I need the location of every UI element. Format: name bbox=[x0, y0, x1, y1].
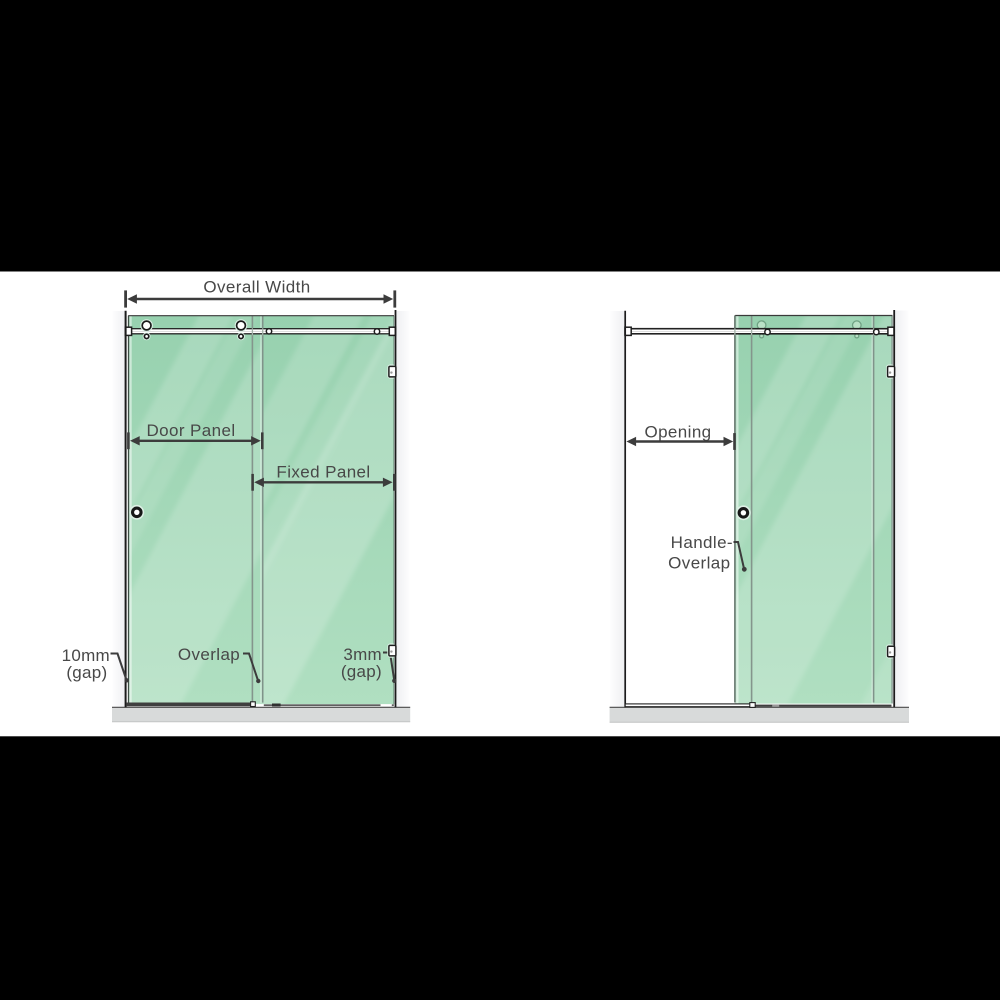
svg-text:Fixed Panel: Fixed Panel bbox=[276, 463, 370, 482]
svg-text:Overlap: Overlap bbox=[178, 645, 240, 664]
svg-text:Opening: Opening bbox=[644, 423, 711, 442]
svg-text:Door Panel: Door Panel bbox=[146, 421, 235, 440]
svg-text:(gap): (gap) bbox=[341, 662, 382, 681]
svg-text:Handle-: Handle- bbox=[671, 533, 733, 552]
svg-text:Overlap: Overlap bbox=[668, 553, 730, 572]
svg-text:(gap): (gap) bbox=[66, 663, 107, 682]
svg-text:Overall Width: Overall Width bbox=[203, 278, 310, 297]
